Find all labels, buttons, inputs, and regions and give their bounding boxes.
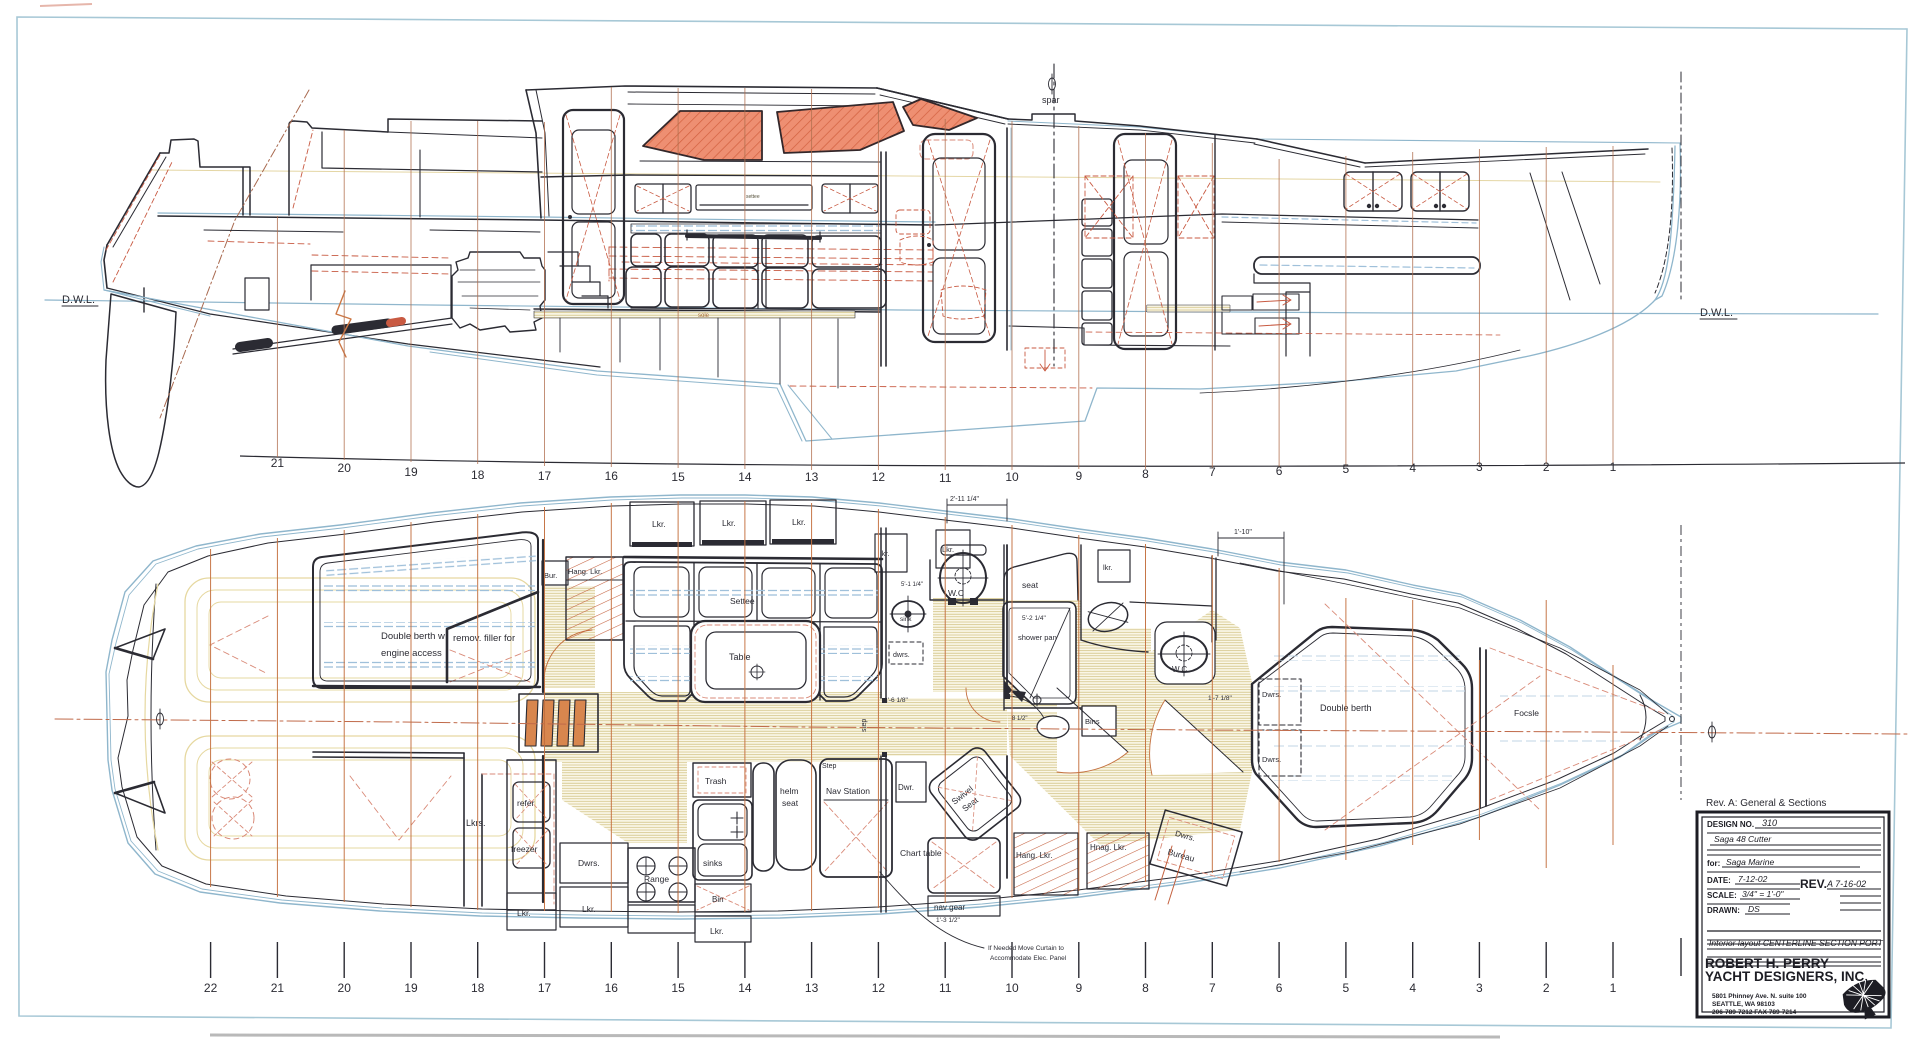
svg-text:1'-10": 1'-10" xyxy=(1234,529,1252,536)
svg-text:Lkr.: Lkr. xyxy=(942,545,954,554)
svg-text:1'-3 1/2": 1'-3 1/2" xyxy=(936,917,960,924)
svg-text:16: 16 xyxy=(605,469,619,483)
svg-text:Saga Marine: Saga Marine xyxy=(1726,857,1774,867)
svg-text:sole: sole xyxy=(698,313,710,319)
svg-text:13: 13 xyxy=(805,470,819,484)
svg-text:14: 14 xyxy=(738,981,752,995)
svg-text:16: 16 xyxy=(605,981,619,995)
svg-text:REV.: REV. xyxy=(1800,877,1827,891)
svg-text:W.C.: W.C. xyxy=(1172,665,1189,674)
svg-text:15: 15 xyxy=(671,981,685,995)
svg-text:1: 1 xyxy=(1610,460,1617,474)
svg-text:for:: for: xyxy=(1707,859,1720,868)
svg-text:Hang. Lkr.: Hang. Lkr. xyxy=(1016,851,1052,860)
svg-text:Range: Range xyxy=(644,874,669,884)
svg-text:SEATTLE, WA 98103: SEATTLE, WA 98103 xyxy=(1712,1001,1775,1008)
svg-text:refer: refer xyxy=(517,798,535,808)
svg-text:Lkr.: Lkr. xyxy=(710,926,724,936)
svg-text:8 1/2": 8 1/2" xyxy=(1012,716,1027,722)
svg-text:Rev. A: General & Sections: Rev. A: General & Sections xyxy=(1706,798,1826,809)
svg-text:D.W.L.: D.W.L. xyxy=(1700,307,1733,319)
svg-text:Hnag. Lkr.: Hnag. Lkr. xyxy=(1090,843,1126,852)
svg-text:D.W.L.: D.W.L. xyxy=(62,294,95,306)
svg-text:Dwrs.: Dwrs. xyxy=(1262,755,1281,764)
svg-text:3: 3 xyxy=(1476,981,1483,995)
svg-text:Interior layout CENTERLINE SEC: Interior layout CENTERLINE SECTION PORT xyxy=(1709,938,1883,948)
svg-text:20: 20 xyxy=(338,461,352,475)
svg-text:1: 1 xyxy=(1610,981,1617,995)
svg-text:Trash: Trash xyxy=(705,776,727,786)
svg-text:13: 13 xyxy=(805,981,819,995)
svg-text:9: 9 xyxy=(1075,469,1082,483)
svg-text:8: 8 xyxy=(1142,467,1149,481)
svg-text:DATE:: DATE: xyxy=(1707,876,1731,885)
svg-text:19: 19 xyxy=(404,981,418,995)
svg-text:Focsle: Focsle xyxy=(1514,708,1539,718)
svg-text:21: 21 xyxy=(271,981,285,995)
svg-text:1'-6 1/8": 1'-6 1/8" xyxy=(884,697,908,704)
svg-text:Lkr.: Lkr. xyxy=(652,519,666,529)
svg-text:Lkr.: Lkr. xyxy=(792,517,806,527)
svg-text:Nav Station: Nav Station xyxy=(826,786,870,796)
svg-text:Lkr.: Lkr. xyxy=(582,904,596,914)
svg-text:5: 5 xyxy=(1343,981,1350,995)
svg-text:14: 14 xyxy=(738,470,752,484)
svg-text:206-789-7212 FAX 789-7214: 206-789-7212 FAX 789-7214 xyxy=(1712,1009,1797,1016)
svg-text:helm: helm xyxy=(780,786,798,796)
svg-text:Dwrs.: Dwrs. xyxy=(1262,690,1281,699)
svg-text:lkr.: lkr. xyxy=(1103,563,1113,572)
svg-text:2: 2 xyxy=(1543,981,1550,995)
svg-text:SCALE:: SCALE: xyxy=(1707,891,1737,900)
svg-text:6: 6 xyxy=(1276,464,1283,478)
svg-text:5'-2 1/4": 5'-2 1/4" xyxy=(1022,615,1046,622)
svg-text:Settee: Settee xyxy=(730,596,755,606)
svg-text:DS: DS xyxy=(1748,904,1760,914)
svg-text:sinks: sinks xyxy=(703,858,722,868)
svg-text:310: 310 xyxy=(1762,818,1777,828)
svg-text:11: 11 xyxy=(939,981,952,995)
svg-text:spar: spar xyxy=(1042,95,1060,105)
svg-text:Bur.: Bur. xyxy=(544,571,557,580)
svg-text:Lkr.: Lkr. xyxy=(517,908,531,918)
svg-text:12: 12 xyxy=(872,981,886,995)
svg-text:5801 Phinney Ave. N. suite 100: 5801 Phinney Ave. N. suite 100 xyxy=(1712,993,1807,1000)
svg-text:6: 6 xyxy=(1276,981,1283,995)
svg-text:4: 4 xyxy=(1409,981,1416,995)
svg-text:11: 11 xyxy=(939,471,952,485)
svg-text:22: 22 xyxy=(204,981,218,995)
svg-text:YACHT DESIGNERS, INC.: YACHT DESIGNERS, INC. xyxy=(1705,969,1868,984)
svg-text:Lkr.: Lkr. xyxy=(722,518,736,528)
svg-text:15: 15 xyxy=(671,470,685,484)
svg-text:Table: Table xyxy=(729,652,751,662)
svg-text:5'-1 1/4": 5'-1 1/4" xyxy=(901,582,923,588)
svg-text:seat: seat xyxy=(1022,580,1039,590)
svg-text:Dwrs.: Dwrs. xyxy=(578,858,600,868)
svg-text:18: 18 xyxy=(471,468,485,482)
svg-text:4: 4 xyxy=(1409,461,1416,475)
svg-text:Hang. Lkr.: Hang. Lkr. xyxy=(568,567,602,576)
svg-text:Step: Step xyxy=(822,763,837,770)
svg-text:DESIGN NO.: DESIGN NO. xyxy=(1707,820,1754,829)
svg-text:Double berth w: Double berth w xyxy=(381,631,445,642)
svg-text:7: 7 xyxy=(1209,465,1216,479)
svg-text:10: 10 xyxy=(1005,470,1019,484)
svg-text:DRAWN:: DRAWN: xyxy=(1707,906,1740,915)
svg-text:step: step xyxy=(861,719,868,732)
svg-text:settee: settee xyxy=(746,194,760,200)
svg-text:If Needed Move Curtain to: If Needed Move Curtain to xyxy=(988,945,1064,952)
svg-text:5: 5 xyxy=(1343,462,1350,476)
svg-text:2: 2 xyxy=(1543,460,1550,474)
svg-text:19: 19 xyxy=(404,465,418,479)
svg-text:Chart table: Chart table xyxy=(900,848,942,858)
svg-text:10: 10 xyxy=(1005,981,1019,995)
svg-text:3/4" = 1'-0": 3/4" = 1'-0" xyxy=(1742,889,1784,899)
svg-text:W.C: W.C xyxy=(948,588,964,598)
svg-text:Accommodate Elec. Panel: Accommodate Elec. Panel xyxy=(990,955,1067,962)
svg-text:7: 7 xyxy=(1209,981,1216,995)
svg-text:A 7-16-02: A 7-16-02 xyxy=(1826,879,1866,889)
svg-text:Dwr.: Dwr. xyxy=(898,783,914,792)
svg-text:17: 17 xyxy=(538,981,552,995)
svg-text:7-12-02: 7-12-02 xyxy=(1738,874,1768,884)
svg-text:1'-7 1/8": 1'-7 1/8" xyxy=(1208,695,1232,702)
svg-text:8: 8 xyxy=(1142,981,1149,995)
svg-text:dwrs.: dwrs. xyxy=(893,652,910,659)
svg-text:17: 17 xyxy=(538,469,552,483)
svg-text:Saga 48 Cutter: Saga 48 Cutter xyxy=(1714,834,1772,844)
svg-text:seat: seat xyxy=(782,798,799,808)
svg-text:freezer: freezer xyxy=(511,844,538,854)
svg-text:remov. filler for: remov. filler for xyxy=(453,633,515,644)
svg-text:9: 9 xyxy=(1075,981,1082,995)
svg-text:20: 20 xyxy=(338,981,352,995)
svg-text:sink: sink xyxy=(900,616,912,623)
svg-text:Lkrs.: Lkrs. xyxy=(466,818,486,828)
svg-text:12: 12 xyxy=(872,470,886,484)
svg-text:Bin: Bin xyxy=(712,895,724,904)
svg-text:shower pan: shower pan xyxy=(1018,633,1057,642)
svg-text:2'-11 1/4": 2'-11 1/4" xyxy=(950,496,980,503)
svg-text:21: 21 xyxy=(271,456,285,470)
svg-text:18: 18 xyxy=(471,981,485,995)
svg-text:3: 3 xyxy=(1476,460,1483,474)
svg-text:nav gear: nav gear xyxy=(934,903,965,912)
svg-text:engine access: engine access xyxy=(381,648,442,659)
